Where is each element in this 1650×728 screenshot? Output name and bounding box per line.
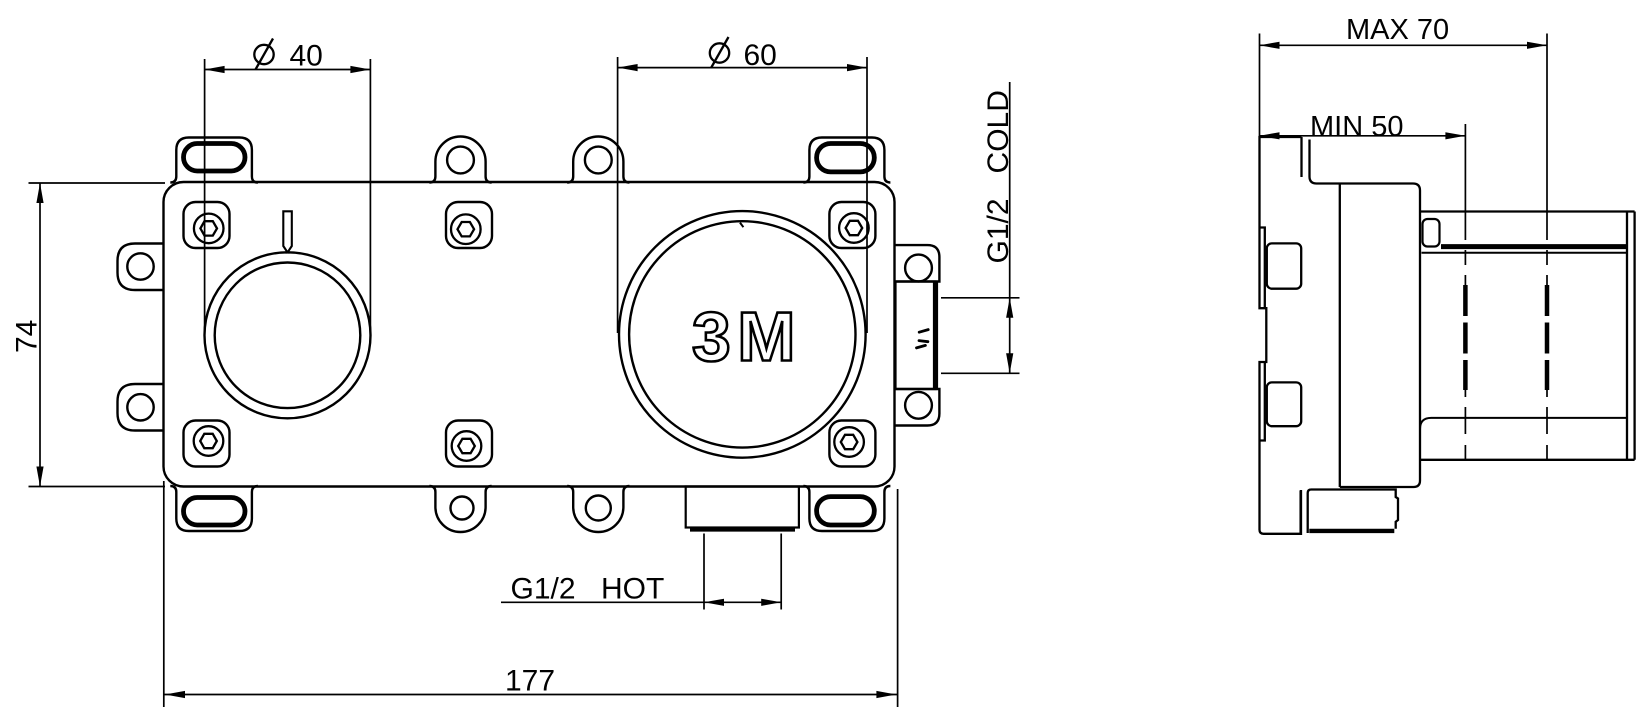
svg-text:40: 40 bbox=[290, 40, 323, 73]
svg-text:MAX 70: MAX 70 bbox=[1346, 14, 1449, 46]
svg-text:60: 60 bbox=[744, 39, 777, 72]
svg-text:G1/2: G1/2 bbox=[511, 573, 576, 606]
svg-text:3M: 3M bbox=[692, 298, 802, 376]
svg-text:177: 177 bbox=[505, 665, 555, 698]
svg-text:G1/2 COLD: G1/2 COLD bbox=[982, 90, 1015, 263]
svg-text:HOT: HOT bbox=[601, 573, 664, 606]
svg-text:74: 74 bbox=[11, 320, 44, 353]
svg-text:MIN 50: MIN 50 bbox=[1310, 111, 1403, 143]
